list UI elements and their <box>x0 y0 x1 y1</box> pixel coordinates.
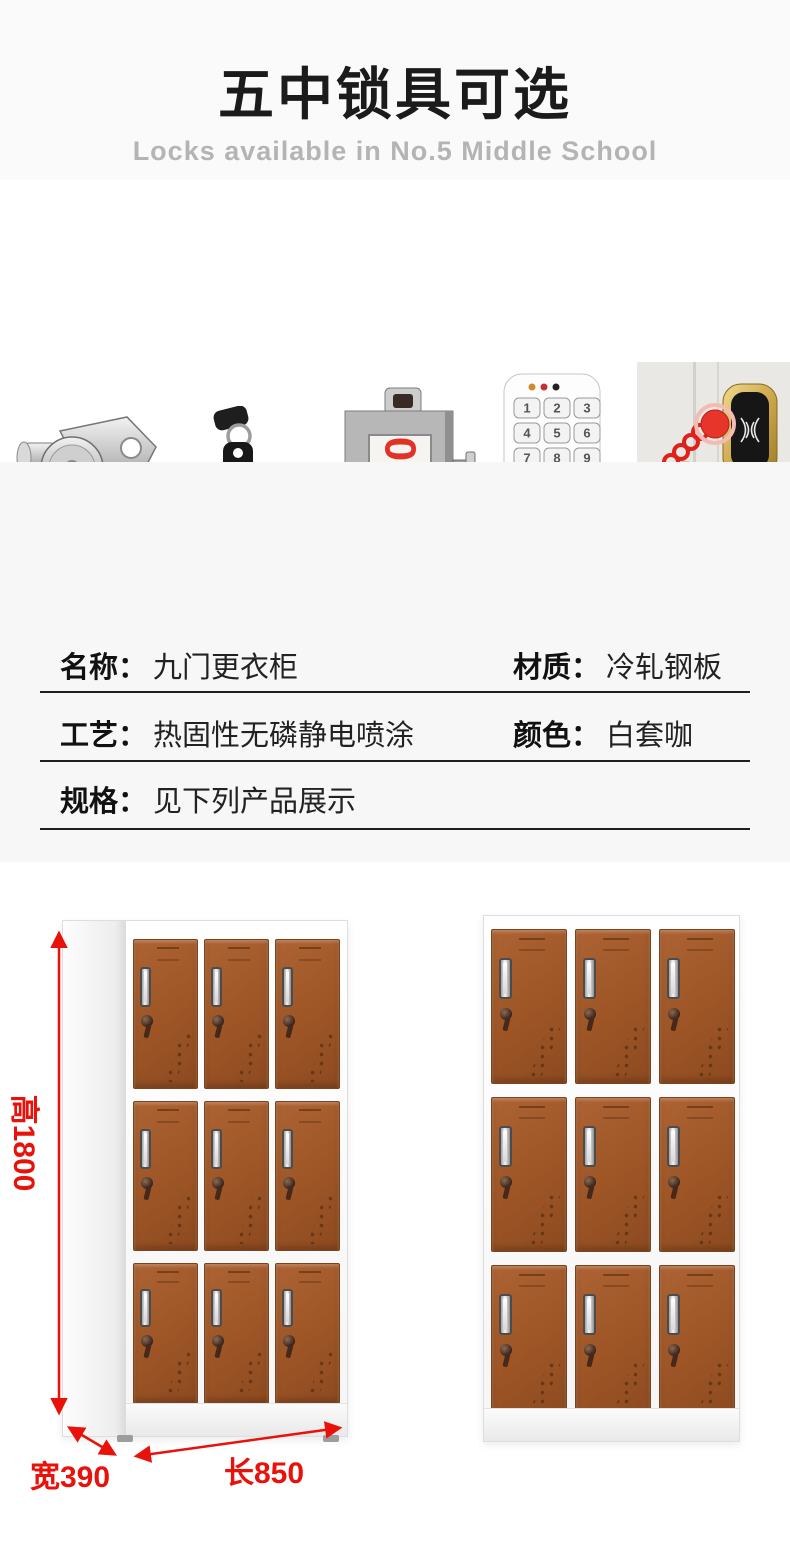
info-value: 冷轧钢板 <box>606 652 722 684</box>
door-vent-slots <box>519 1106 546 1120</box>
door-vent-holes <box>697 1361 730 1413</box>
door-handle <box>583 1126 596 1167</box>
door-keyhole <box>668 1008 684 1032</box>
info-label: 规格： <box>60 786 147 818</box>
door-vent-holes <box>613 1193 646 1245</box>
door-keyhole <box>584 1344 600 1368</box>
door-vent-holes <box>697 1193 730 1245</box>
divider-line <box>40 691 750 693</box>
door-vent-slots <box>687 938 714 952</box>
keypad-key-6: 6 <box>583 426 590 441</box>
door-handle <box>667 1126 680 1167</box>
info-label: 材质： <box>513 652 600 684</box>
door-vent-holes <box>529 1193 562 1245</box>
door-handle <box>583 1294 596 1335</box>
info-value: 白套咖 <box>606 720 693 752</box>
door-handle <box>667 1294 680 1335</box>
locker-door <box>491 929 567 1084</box>
info-field-color: 颜色：白套咖 <box>513 712 693 754</box>
door-keyhole <box>500 1344 516 1368</box>
dimension-width-label: 宽390 <box>30 1452 110 1496</box>
door-vent-holes <box>529 1025 562 1077</box>
locker-door <box>659 1097 735 1252</box>
dimension-height-label: 高1800 <box>19 1087 49 1199</box>
door-vent-slots <box>603 938 630 952</box>
product-info-section: 产品信息 名称：九门更衣柜 材质：冷轧钢板 工艺：热固性无磷静电喷涂 颜色：白套… <box>0 462 790 862</box>
divider-line <box>40 760 750 762</box>
door-vent-holes <box>529 1361 562 1413</box>
keypad-key-4: 4 <box>523 426 531 441</box>
divider-line <box>40 828 750 830</box>
info-field-process: 工艺：热固性无磷静电喷涂 <box>60 712 414 754</box>
info-value: 见下列产品展示 <box>153 786 356 818</box>
locker-door <box>575 1097 651 1252</box>
locker-door <box>575 929 651 1084</box>
page-subtitle: Locks available in No.5 Middle School <box>0 136 790 167</box>
info-label: 名称： <box>60 652 147 684</box>
locker-showcase-section: 高1800 宽390 长850 <box>0 862 790 1567</box>
dimension-arrows <box>0 862 420 1482</box>
keypad-key-3: 3 <box>583 401 590 416</box>
info-value: 热固性无磷静电喷涂 <box>153 720 414 752</box>
locker-door <box>491 1097 567 1252</box>
door-keyhole <box>500 1008 516 1032</box>
door-keyhole <box>584 1008 600 1032</box>
info-label: 工艺： <box>60 720 147 752</box>
door-handle <box>499 1294 512 1335</box>
door-keyhole <box>584 1176 600 1200</box>
info-field-name: 名称：九门更衣柜 <box>60 644 298 686</box>
info-field-material: 材质：冷轧钢板 <box>513 644 722 686</box>
locks-row: 008 1 2 3 <box>0 180 790 388</box>
door-vent-slots <box>519 938 546 952</box>
door-handle <box>667 958 680 999</box>
door-keyhole <box>500 1176 516 1200</box>
info-field-spec: 规格：见下列产品展示 <box>60 778 356 820</box>
info-label: 颜色： <box>513 720 600 752</box>
door-keyhole <box>668 1344 684 1368</box>
header-section: 五中锁具可选 Locks available in No.5 Middle Sc… <box>0 0 790 180</box>
locker-door <box>491 1265 567 1420</box>
keypad-key-1: 1 <box>523 401 530 416</box>
door-vent-holes <box>613 1025 646 1077</box>
door-vent-slots <box>519 1274 546 1288</box>
door-vent-slots <box>603 1274 630 1288</box>
door-keyhole <box>668 1176 684 1200</box>
keypad-key-2: 2 <box>553 401 560 416</box>
dimension-length-label: 长850 <box>224 1448 304 1492</box>
door-handle <box>499 1126 512 1167</box>
door-handle <box>583 958 596 999</box>
page-title: 五中锁具可选 <box>0 50 790 131</box>
locker-base <box>484 1408 739 1441</box>
locker-right-doors <box>491 929 735 1420</box>
info-value: 九门更衣柜 <box>153 652 298 684</box>
door-handle <box>499 958 512 999</box>
door-vent-slots <box>603 1106 630 1120</box>
locker-door <box>659 929 735 1084</box>
locker-door <box>575 1265 651 1420</box>
door-vent-slots <box>687 1106 714 1120</box>
door-vent-slots <box>687 1274 714 1288</box>
locker-right-front <box>483 915 740 1442</box>
door-vent-holes <box>697 1025 730 1077</box>
door-vent-holes <box>613 1361 646 1413</box>
keypad-key-5: 5 <box>553 426 560 441</box>
product-detail-page: 五中锁具可选 Locks available in No.5 Middle Sc… <box>0 0 790 1567</box>
locker-door <box>659 1265 735 1420</box>
